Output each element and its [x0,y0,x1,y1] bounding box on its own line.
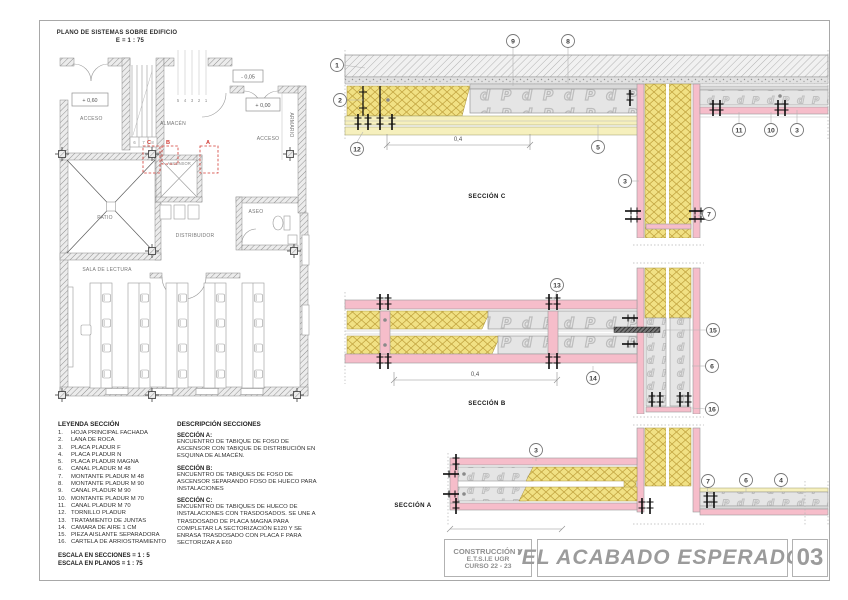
level-left: + 0,60 [82,98,97,104]
dimension-b: 0,4 [391,372,560,386]
svg-text:0,4: 0,4 [471,372,480,378]
room-aseo: ASEO [249,209,264,215]
plan-scale: E = 1 : 75 [116,38,145,44]
room-acceso-left: ACCESO [80,116,103,122]
svg-text:12: 12 [353,146,361,153]
svg-text:11: 11 [735,127,742,134]
callout-8: 8 [562,35,575,48]
callout-12: 12 [351,143,364,156]
section-c-drawing: 0,4 1 2 12 9 8 5 11 10 3 3 7 SECCIÓN [331,35,829,239]
svg-text:15: 15 [709,327,717,334]
reading-room-desks [81,283,264,388]
sheet-number: 03 [792,539,828,577]
svg-text:0,4: 0,4 [454,137,463,143]
dimension-c: 0,4 [384,134,533,150]
svg-text:7: 7 [706,478,710,485]
svg-text:2: 2 [198,98,201,103]
svg-text:C: C [147,140,151,146]
legend-title: LEYENDA SECCIÓN [58,421,176,428]
callout-9: 9 [507,35,520,48]
callout-14: 14 [587,372,600,385]
svg-text:1: 1 [205,98,208,103]
legend-item: 11.CANAL PLADUR M 70 [58,503,176,510]
drawing-sheet: PLANO DE SISTEMAS SOBRE EDIFICIO E = 1 :… [0,0,848,600]
description-body-a: ENCUENTRO DE TABIQUE DE FOSO DE ASCENSOR… [177,439,317,461]
legend-item: 10.MONTANTE PLADUR M 70 [58,496,176,503]
title-block: CONSTRUCCIÓN V E.T.S.I.E UGR CURSO 22 - … [444,539,828,577]
callout-4-a: 4 [775,474,788,487]
legend-item: 12.TORNILLO PLADUR [58,510,176,517]
sheet-title: 'EL ACABADO ESPERADO' [537,539,788,577]
room-almacen: ALMACÉN [160,120,186,127]
callout-6-wall: 6 [706,360,719,373]
svg-text:3: 3 [623,178,627,185]
room-distribuidor: DISTRIBUIDOR [176,233,215,239]
callout-10: 10 [765,124,778,137]
legend-item: 5.PLACA PLADUR MAGNA [58,459,176,466]
wall-break-1 [632,238,705,268]
svg-text:3: 3 [534,447,538,454]
svg-text:2: 2 [338,97,342,104]
callout-11: 11 [733,124,746,137]
legend-item: 3.PLACA PLADUR F [58,445,176,452]
legend: LEYENDA SECCIÓN 1.HOJA PRINCIPAL FACHADA… [58,421,176,567]
floor-plan: PLANO DE SISTEMAS SOBRE EDIFICIO E = 1 :… [50,25,320,423]
section-a-label: SECCIÓN A [394,501,431,509]
svg-text:14: 14 [589,375,597,382]
legend-item: 13.TRATAMIENTO DE JUNTAS [58,518,176,525]
description-body-b: ENCUENTRO DE TABIQUES DE FOSO DE ASCENSO… [177,472,317,494]
callout-6-a: 6 [740,474,753,487]
legend-item: 7.MONTANTE PLADUR M 48 [58,474,176,481]
legend-item: 6.CANAL PLADUR M 48 [58,466,176,473]
callout-16: 16 [706,403,719,416]
callout-3-a: 3 [530,444,543,457]
section-details: P d P d [330,28,848,540]
svg-text:4: 4 [184,98,187,103]
callout-3-right: 3 [791,124,804,137]
svg-text:5: 5 [177,98,180,103]
plan-title: PLANO DE SISTEMAS SOBRE EDIFICIO [57,30,178,36]
scale-plans: ESCALA EN PLANOS = 1 : 75 [58,560,176,567]
legend-item: 8.MONTANTE PLADUR M 90 [58,481,176,488]
scale-sections: ESCALA EN SECCIONES = 1 : 5 [58,552,176,559]
section-c-label: SECCIÓN C [468,192,506,200]
section-b-label: SECCIÓN B [468,399,506,407]
callout-15: 15 [707,324,720,337]
svg-text:6: 6 [710,363,714,370]
level-right: + 0,00 [255,103,270,109]
legend-item: 15.PIEZA AISLANTE SEPARADORA [58,532,176,539]
svg-text:6: 6 [744,477,748,484]
svg-text:4: 4 [779,477,783,484]
svg-text:3: 3 [795,127,799,134]
callout-1: 1 [331,59,344,72]
legend-item: 16.CARTELA DE ARRIOSTRAMIENTO [58,539,176,546]
callout-2: 2 [334,94,347,107]
legend-item: 9.CANAL PLADUR M 90 [58,488,176,495]
legend-item: 4.PLACA PLADUR N [58,452,176,459]
legend-item: 2.LANA DE ROCA [58,437,176,444]
vertical-wall-mid [637,268,700,414]
description-body-c: ENCUENTRO DE TABIQUES DE HUECO DE INSTAL… [177,504,317,547]
callout-13: 13 [551,279,564,292]
room-armario: ARMARIO [288,112,294,137]
wall-break-2 [632,414,705,428]
svg-text:9: 9 [511,38,515,45]
room-sala: SALA DE LECTURA [82,267,132,273]
svg-text:8: 8 [566,38,570,45]
section-a-drawing: 3 7 6 4 SECCIÓN A [394,444,828,533]
callout-5: 5 [592,141,605,154]
level-entry: - 0,05 [241,75,255,81]
svg-text:16: 16 [708,406,716,413]
description-title: DESCRIPCIÓN SECCIONES [177,421,317,428]
legend-item: 1.HOJA PRINCIPAL FACHADA [58,430,176,437]
callout-7-wall: 7 [703,208,716,221]
room-patio: PATIO [97,215,113,221]
svg-text:B: B [166,140,170,146]
svg-text:10: 10 [767,127,775,134]
callout-3-wall: 3 [619,175,632,188]
callout-7-a: 7 [702,475,715,488]
svg-text:A: A [206,140,210,146]
svg-text:13: 13 [553,282,561,289]
room-acceso-right: ACCESO [257,136,280,142]
description: DESCRIPCIÓN SECCIONES SECCIÓN A: ENCUENT… [177,421,317,547]
svg-text:7: 7 [707,211,711,218]
svg-text:3: 3 [191,98,194,103]
svg-text:1: 1 [335,62,339,69]
room-ascensor: ASCENSOR [167,161,191,166]
svg-text:5: 5 [596,144,600,151]
legend-item: 14.CAMARA DE AIRE 1 CM [58,525,176,532]
